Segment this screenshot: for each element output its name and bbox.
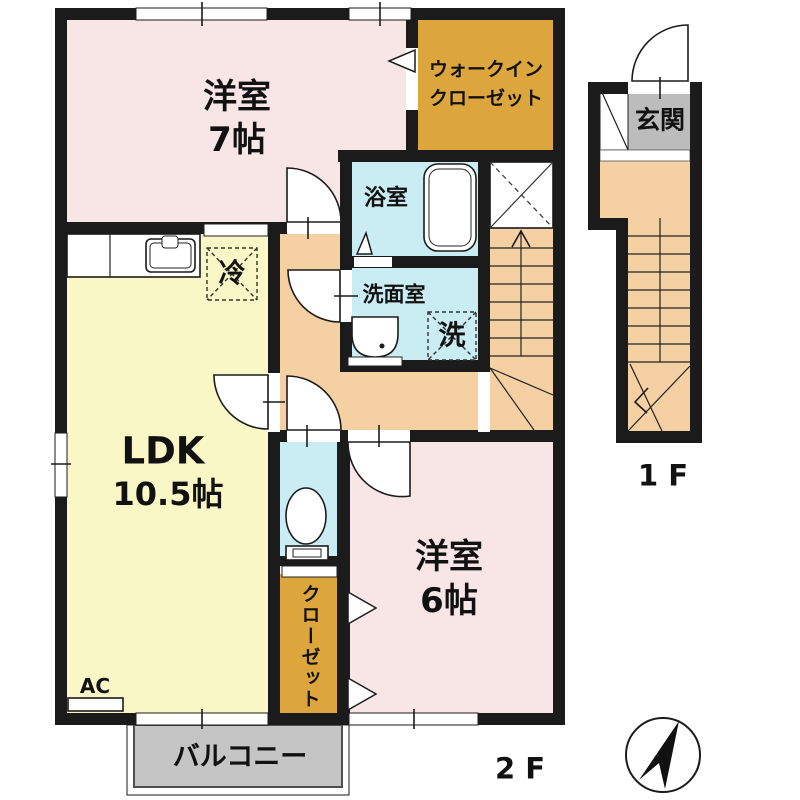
opening-stairs-door bbox=[478, 372, 490, 432]
ac-unit-box bbox=[68, 698, 123, 711]
wall-2f-right bbox=[553, 8, 565, 725]
label-bathroom: 浴室 bbox=[364, 188, 408, 210]
wash-basin bbox=[352, 317, 398, 357]
wall-1f-upper-left bbox=[588, 82, 600, 230]
genkan-step bbox=[600, 150, 690, 161]
label-ac: AC bbox=[80, 676, 110, 696]
wash-basin-base bbox=[348, 357, 402, 366]
label-ldk-name: LDK bbox=[122, 433, 205, 470]
label-western7-name: 洋室 bbox=[203, 80, 271, 114]
wall-1f-bottom bbox=[616, 431, 702, 443]
north-compass bbox=[626, 718, 700, 792]
wall-toilet-right bbox=[337, 430, 350, 713]
label-western6-name: 洋室 bbox=[415, 540, 483, 574]
toilet-bowl bbox=[286, 488, 326, 544]
label-genkan: 玄関 bbox=[635, 108, 685, 133]
label-fridge: 冷 bbox=[219, 261, 246, 288]
label-closet: クローゼット bbox=[300, 584, 319, 710]
label-wic-line2: クローゼット bbox=[429, 90, 543, 109]
opening-western7-door bbox=[287, 222, 340, 234]
label-western6-size: 6帖 bbox=[420, 584, 478, 618]
wall-ldk-right bbox=[268, 228, 280, 713]
window-ldk-left bbox=[55, 433, 67, 497]
wall-1f-lower-left bbox=[616, 218, 628, 443]
hall-1f-fill bbox=[600, 160, 690, 220]
wall-2f-bottom bbox=[55, 713, 565, 725]
label-washroom: 洗面室 bbox=[363, 285, 426, 306]
wall-bath-top bbox=[338, 150, 565, 162]
label-washer: 洗 bbox=[439, 323, 466, 350]
wall-2f-top bbox=[55, 8, 565, 20]
wall-1f-right bbox=[690, 82, 702, 443]
door-arc-entrance bbox=[632, 25, 688, 81]
label-balcony: バルコニー bbox=[173, 744, 307, 771]
opening-entrance bbox=[628, 82, 690, 94]
label-wic-line1: ウォークイン bbox=[429, 61, 543, 80]
label-western7-size: 7帖 bbox=[208, 123, 266, 157]
wall-2f-left bbox=[55, 8, 67, 725]
basin-drain bbox=[380, 344, 385, 349]
opening-kitchen-pass bbox=[204, 224, 268, 236]
floor-plan-page: 洋室 7帖 ウォークイン クローゼット 浴室 洗面室 洗 冷 LDK 10.5帖… bbox=[0, 0, 800, 800]
hall-lower-fill bbox=[340, 370, 480, 435]
wall-bath-left bbox=[340, 150, 352, 372]
toilet-tank-inner bbox=[293, 549, 321, 557]
label-floor2: 2 F bbox=[495, 755, 545, 784]
opening-bath-door bbox=[354, 257, 392, 267]
opening-toilet-door bbox=[287, 430, 340, 442]
label-floor1: 1 F bbox=[638, 462, 688, 491]
bathtub-inner bbox=[429, 169, 471, 246]
kitchen-faucet bbox=[162, 236, 178, 248]
closet-shelf bbox=[282, 566, 337, 577]
label-ldk-size: 10.5帖 bbox=[113, 478, 224, 510]
